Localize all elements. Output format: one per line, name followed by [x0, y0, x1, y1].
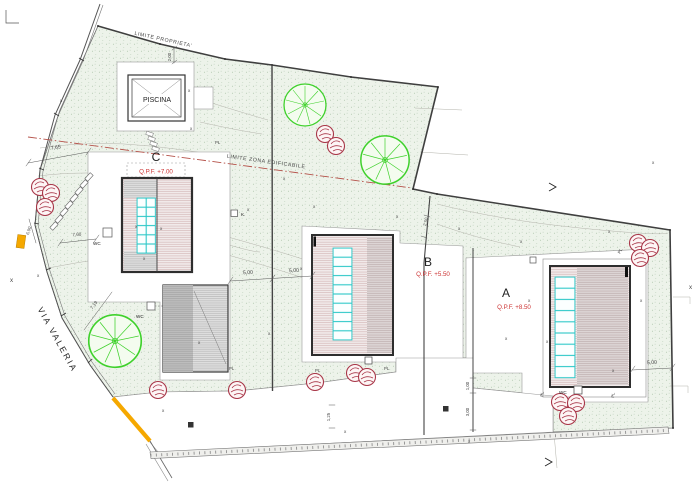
building-b-label: B	[424, 255, 432, 269]
section-arrow	[549, 183, 556, 191]
pl-label: PL	[215, 140, 221, 145]
bush-icon	[307, 374, 324, 391]
section-arrow	[545, 458, 552, 466]
parcel-division-line-1	[272, 66, 273, 391]
dim-500: 5,00	[647, 360, 658, 367]
skylight-grid-a	[555, 277, 575, 378]
building-c-elevation: Q.P.F. +7.00	[139, 169, 173, 176]
dim-200: 2,00	[167, 52, 172, 61]
tree-icon	[89, 315, 142, 368]
pl-label: PL	[384, 366, 390, 371]
bush-icon	[150, 382, 167, 399]
gate-marker-small	[16, 235, 26, 249]
pool-label: PISCINA	[143, 97, 171, 104]
pool-tech-room	[194, 87, 213, 109]
dim-760: 7,60	[72, 232, 82, 238]
site-plan-drawing: VIA VALERIA LIMITE PROPRIETA' LIMITE ZON…	[0, 0, 700, 499]
dim-125: 1,25	[326, 412, 331, 421]
bush-icon	[359, 369, 376, 386]
pl-label: PL	[315, 368, 321, 373]
svg-text:x: x	[37, 273, 40, 278]
pl-label: PL	[229, 366, 235, 371]
bush-icon	[560, 408, 577, 425]
tree-icon	[361, 136, 409, 184]
building-c-label: C	[152, 150, 161, 164]
tree-icon	[284, 84, 326, 126]
building-a-label: A	[502, 286, 510, 300]
svg-text:x: x	[10, 277, 14, 284]
wc-label: WC	[93, 241, 101, 246]
dim-500: 5,00	[289, 268, 300, 275]
site-plan: VIA VALERIA LIMITE PROPRIETA' LIMITE ZON…	[0, 0, 700, 499]
building-c: C Q.P.F. +7.00	[122, 150, 192, 272]
k-label: K.	[241, 212, 245, 217]
utility-square	[443, 406, 449, 412]
bush-icon	[37, 199, 54, 216]
bush-icon	[229, 382, 246, 399]
building-b-elevation: Q.P.F. +5.50	[416, 271, 450, 278]
corner-mark	[6, 10, 19, 23]
svg-text:x: x	[689, 284, 693, 291]
building-a-elevation: Q.P.F. +8.50	[497, 304, 531, 311]
svg-text:x: x	[652, 160, 655, 165]
bush-icon	[328, 138, 345, 155]
wc-label: WC	[559, 390, 567, 395]
dim-500: 5,00	[243, 270, 254, 277]
skylight-grid-c	[137, 198, 155, 253]
wc-label: WC	[136, 314, 144, 319]
skylight-grid-b	[333, 248, 352, 340]
garage-building	[163, 285, 228, 372]
bush-icon	[632, 250, 649, 267]
dim-300: 3,00	[465, 407, 470, 416]
utility-square	[188, 422, 194, 428]
dim-100: 1,00	[465, 381, 470, 390]
